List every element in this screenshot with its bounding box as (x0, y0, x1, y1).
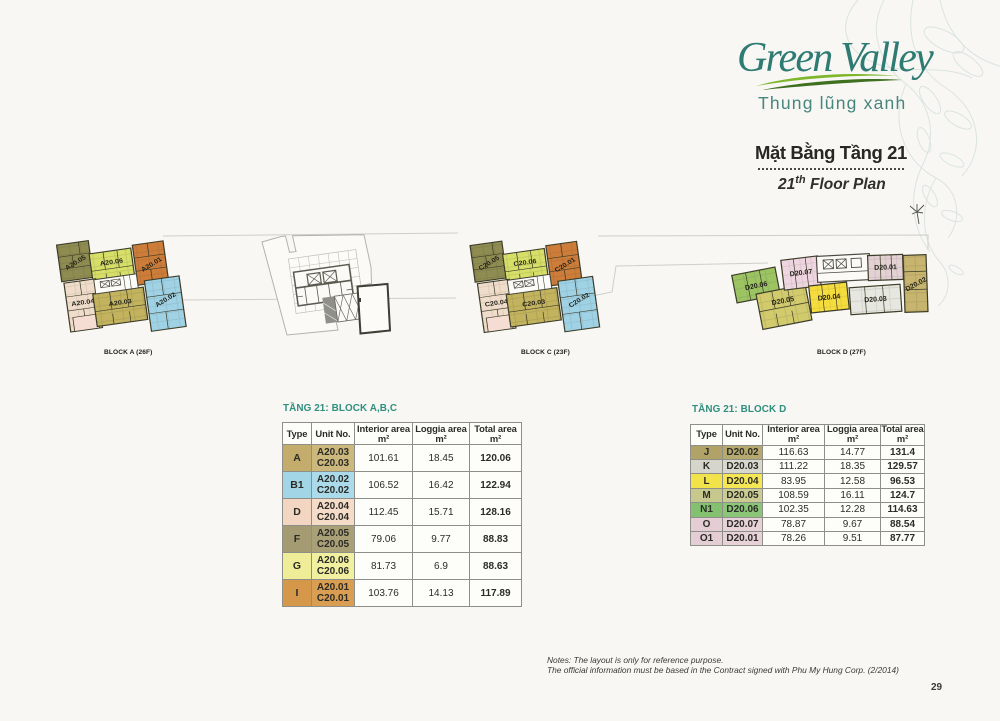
svg-text:D20.01: D20.01 (874, 264, 897, 272)
